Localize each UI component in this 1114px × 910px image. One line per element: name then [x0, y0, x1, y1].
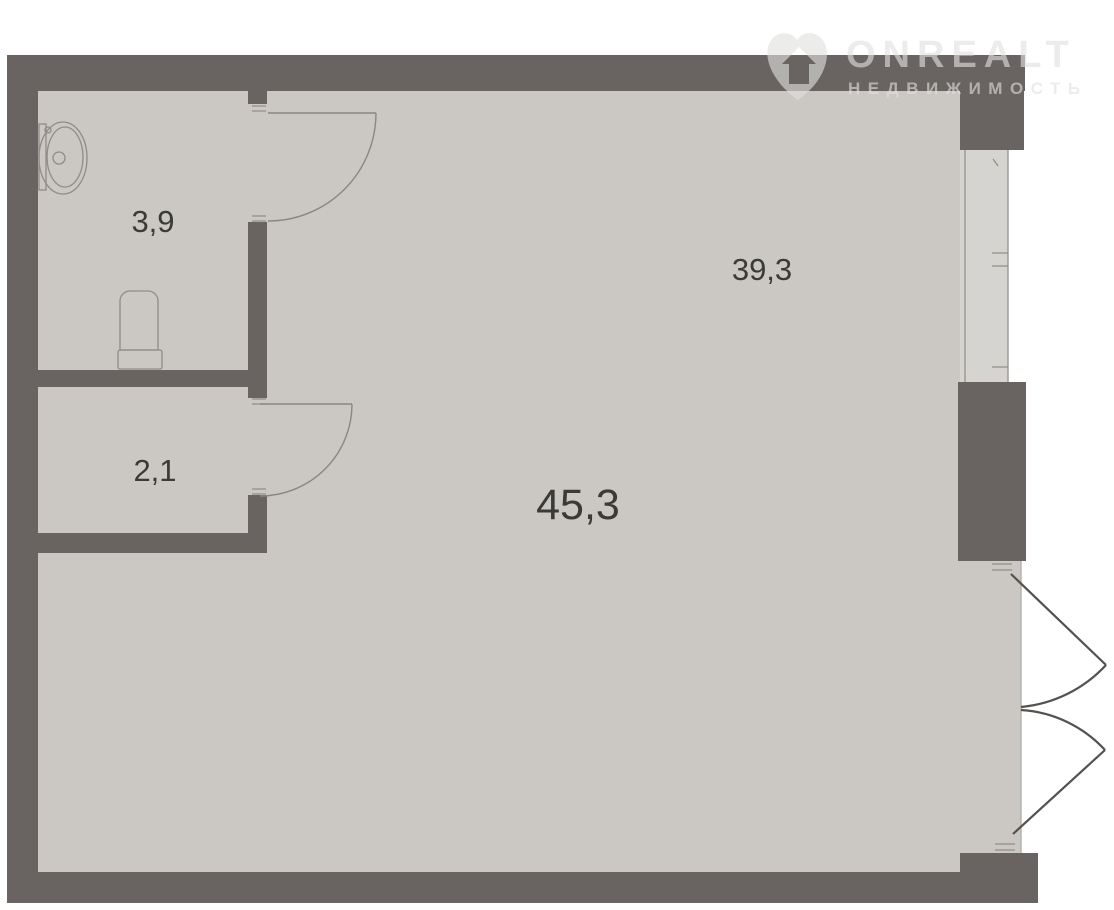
label-bathroom-area: 3,9 — [131, 204, 174, 239]
wall-pier-mid-right — [958, 382, 1026, 561]
hallway-south-wall — [36, 533, 267, 553]
watermark-brand-text: ONREALT — [846, 34, 1076, 76]
label-total-area: 45,3 — [536, 481, 620, 529]
wall-pier-top-right — [960, 91, 1024, 150]
label-living-area: 39,3 — [732, 252, 792, 287]
floor-plan-page: 3,9 2,1 39,3 45,3 ONREALT НЕДВИЖИМОСТЬ — [0, 0, 1114, 910]
bathroom-hallway-divider-wall — [36, 370, 267, 387]
label-hallway-area: 2,1 — [133, 453, 176, 488]
wall-pier-bottom-right — [960, 853, 1038, 903]
balcony-threshold-floor — [958, 561, 1021, 853]
wall-left — [7, 55, 38, 903]
floor-plan-svg: 3,9 2,1 39,3 45,3 ONREALT НЕДВИЖИМОСТЬ — [0, 0, 1114, 910]
wall-bottom — [7, 872, 1024, 903]
bathroom-east-wall-stub — [248, 91, 267, 104]
watermark-subtitle-text: НЕДВИЖИМОСТЬ — [848, 79, 1088, 98]
